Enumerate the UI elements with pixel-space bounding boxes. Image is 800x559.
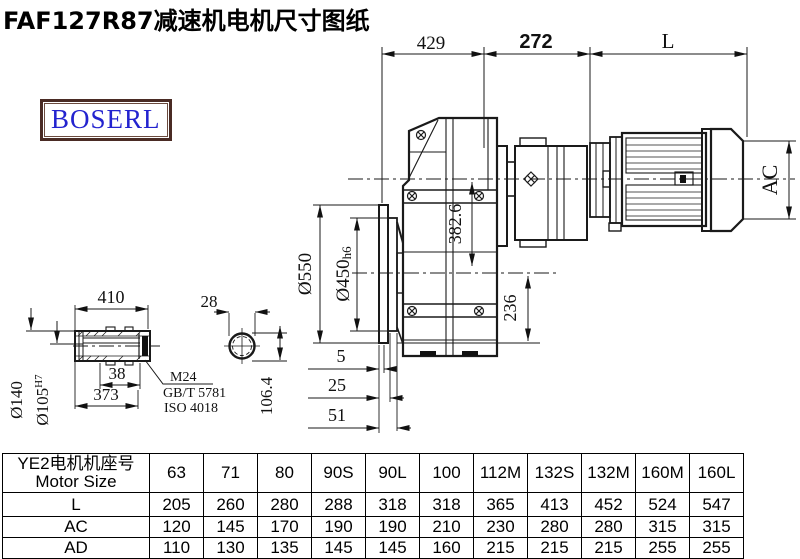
- dim-51-label: 51: [328, 405, 346, 425]
- output-flange: [379, 205, 403, 344]
- flange-diameter-dimensions: Ø550 Ø450h6: [295, 205, 388, 343]
- table-header-row: YE2电机机座号 Motor Size 63 71 80 90S 90L 100…: [3, 454, 744, 493]
- col-header: 80: [258, 454, 312, 493]
- dim-450-value: Ø450: [333, 259, 354, 301]
- fan-cowl: [702, 129, 743, 231]
- cell: 255: [636, 538, 690, 559]
- cell: 280: [528, 517, 582, 538]
- dim-382-label: 382.6: [445, 204, 465, 245]
- motor: [603, 129, 743, 231]
- dim-429-label: 429: [417, 33, 446, 54]
- row-label: AC: [3, 517, 150, 538]
- cell: 255: [690, 538, 744, 559]
- cell: 315: [690, 517, 744, 538]
- cell: 145: [204, 517, 258, 538]
- cell: 230: [474, 517, 528, 538]
- motor-size-table: YE2电机机座号 Motor Size 63 71 80 90S 90L 100…: [2, 453, 744, 559]
- dim-106-label: 106.4: [257, 376, 276, 415]
- cell: 190: [366, 517, 420, 538]
- row-label: AD: [3, 538, 150, 559]
- cell: 135: [258, 538, 312, 559]
- col-header: 132S: [528, 454, 582, 493]
- col-header: 132M: [582, 454, 636, 493]
- drawing-page: { "title": "FAF127R87减速机电机尺寸图纸", "logo":…: [0, 0, 800, 557]
- terminal-box: [675, 172, 693, 185]
- col-header: 90L: [366, 454, 420, 493]
- ac-dimension: AC: [743, 141, 796, 219]
- dim-L-label: L: [662, 29, 675, 53]
- cell: 130: [204, 538, 258, 559]
- table-row-AC: AC 120 145 170 190 190 210 230 280 280 3…: [3, 517, 744, 538]
- cell: 452: [582, 493, 636, 517]
- cell: 260: [204, 493, 258, 517]
- dim-105-label: Ø105H7: [33, 374, 52, 426]
- cell: 547: [690, 493, 744, 517]
- dim-105-value: Ø105: [33, 388, 52, 426]
- hollow-shaft-detail: 410 38 373 Ø140 Ø10: [7, 287, 226, 426]
- dim-373-label: 373: [93, 385, 119, 404]
- table-row-L: L 205 260 280 288 318 318 365 413 452 52…: [3, 493, 744, 517]
- table-row-AD: AD 110 130 135 145 145 160 215 215 215 2…: [3, 538, 744, 559]
- cell: 145: [366, 538, 420, 559]
- cell: 160: [420, 538, 474, 559]
- dim-272-label: 272: [519, 31, 552, 53]
- header-en: Motor Size: [3, 473, 149, 491]
- dim-236-label: 236: [500, 295, 520, 322]
- input-gear-stage: [497, 138, 610, 247]
- cell: 524: [636, 493, 690, 517]
- dim-38-label: 38: [109, 364, 126, 383]
- row-label: L: [3, 493, 150, 517]
- note-iso-label: ISO 4018: [164, 401, 218, 416]
- bolt-callout: M24 GB/T 5781 ISO 4018: [145, 360, 226, 416]
- cell: 365: [474, 493, 528, 517]
- col-header: 63: [150, 454, 204, 493]
- vertical-dimensions: 382.6 236: [397, 182, 540, 343]
- dim-410-label: 410: [98, 287, 125, 307]
- dim-5-label: 5: [337, 346, 346, 366]
- cell: 110: [150, 538, 204, 559]
- col-header: 100: [420, 454, 474, 493]
- cell: 215: [582, 538, 636, 559]
- cell: 170: [258, 517, 312, 538]
- dim-550-label: Ø550: [295, 253, 316, 295]
- dim-105-tolerance: H7: [33, 374, 45, 388]
- cell: 145: [312, 538, 366, 559]
- cell: 280: [582, 517, 636, 538]
- dim-140-label: Ø140: [7, 381, 26, 419]
- col-header: 112M: [474, 454, 528, 493]
- dim-450-label: Ø450h6: [333, 246, 354, 302]
- col-header: 160L: [690, 454, 744, 493]
- cell: 315: [636, 517, 690, 538]
- col-header: 90S: [312, 454, 366, 493]
- dim-AC-label: AC: [757, 165, 782, 196]
- motor-size-header: YE2电机机座号 Motor Size: [3, 454, 150, 493]
- dim-28-label: 28: [201, 292, 218, 311]
- cell: 318: [420, 493, 474, 517]
- cell: 318: [366, 493, 420, 517]
- cell: 210: [420, 517, 474, 538]
- flange-offset-dimensions: 5 25 51: [308, 333, 411, 433]
- cell: 215: [528, 538, 582, 559]
- col-header: 160M: [636, 454, 690, 493]
- cell: 190: [312, 517, 366, 538]
- header-cn: YE2电机机座号: [3, 455, 149, 473]
- note-m24-label: M24: [170, 370, 196, 385]
- col-header: 71: [204, 454, 258, 493]
- dim-450-tolerance: h6: [339, 246, 354, 260]
- cell: 280: [258, 493, 312, 517]
- cell: 120: [150, 517, 204, 538]
- dim-25-label: 25: [328, 375, 346, 395]
- cell: 413: [528, 493, 582, 517]
- cell: 288: [312, 493, 366, 517]
- cell: 215: [474, 538, 528, 559]
- note-gb-label: GB/T 5781: [163, 386, 226, 401]
- cell: 205: [150, 493, 204, 517]
